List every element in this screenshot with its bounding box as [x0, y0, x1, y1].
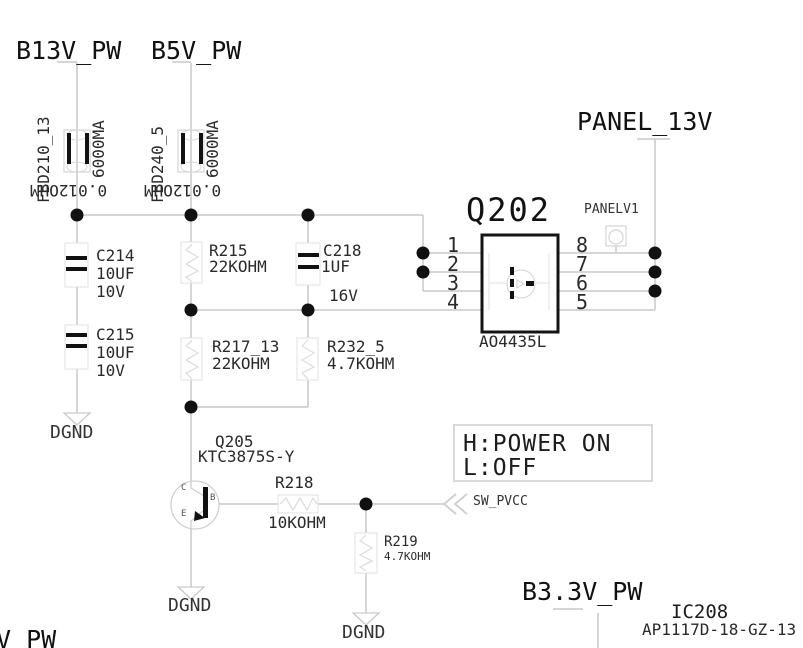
pin-label-base: B	[210, 494, 215, 503]
resistor-symbol	[297, 338, 318, 380]
component-value: 4.7KOHM	[327, 356, 394, 373]
ground-label: DGND	[50, 424, 93, 443]
pin-label-emitter: E	[181, 510, 186, 519]
resistor-symbol	[278, 495, 318, 513]
component-part: AP1117D-18-GZ-13	[642, 622, 796, 639]
signal-label-sw-pvcc: SW_PVCC	[473, 495, 528, 509]
component-part: KTC3875S-Y	[198, 449, 294, 466]
capacitor-symbol	[65, 325, 88, 369]
pin-label-collector: C	[181, 484, 186, 493]
resistor-symbol	[355, 533, 377, 573]
resistor-symbol	[181, 338, 202, 380]
pin-number: 4	[437, 292, 459, 313]
net-label-b5v-pw: B5V_PW	[151, 38, 241, 64]
component-part: AO4435L	[479, 334, 546, 351]
net-label-partial: V_PW	[0, 627, 56, 648]
component-ref: R218	[275, 475, 314, 492]
component-rating: 10V	[96, 363, 125, 380]
resistor-symbol	[181, 242, 202, 283]
bjt-symbol	[171, 481, 219, 529]
component-ref: Q202	[466, 194, 551, 228]
net-label-b13v-pw: B13V_PW	[16, 38, 121, 64]
component-value: 1UF	[321, 259, 350, 276]
schematic-canvas: B13V_PW B5V_PW PANEL_13V B3.3V_PW V_PW F…	[0, 0, 803, 648]
component-value: 0.012OHM	[30, 181, 107, 198]
component-value: 10UF	[96, 266, 135, 283]
pin-number: 5	[576, 292, 588, 313]
net-label-b3-3v-pw: B3.3V_PW	[522, 579, 642, 605]
ground-label: DGND	[168, 597, 211, 616]
capacitor-symbol	[296, 243, 320, 285]
mosfet-symbol	[482, 235, 558, 332]
component-value: 0.012OHM	[144, 181, 221, 198]
component-rating: 6000MA	[91, 120, 108, 178]
net-entry-chevron-icon	[444, 494, 467, 514]
testpoint-label: PANELV1	[584, 203, 639, 217]
component-value: 10UF	[96, 345, 135, 362]
ground-label: DGND	[342, 624, 385, 643]
power-note-line2: L:OFF	[463, 456, 651, 480]
component-value: 10KOHM	[268, 515, 326, 532]
component-ref: C214	[96, 248, 135, 265]
capacitor-symbol	[65, 243, 88, 287]
component-ref: C215	[96, 327, 135, 344]
net-label-panel-13v: PANEL_13V	[577, 109, 712, 135]
testpoint-symbol	[606, 226, 626, 246]
component-value: 4.7KOHM	[384, 551, 430, 563]
component-rating: 10V	[96, 284, 125, 301]
component-value: 22KOHM	[212, 356, 270, 373]
component-ref: R219	[384, 535, 418, 550]
power-note-box: H:POWER ON L:OFF	[453, 424, 653, 482]
component-rating: 6000MA	[205, 120, 222, 178]
component-rating: 16V	[329, 288, 358, 305]
power-note-line1: H:POWER ON	[463, 432, 651, 456]
component-value: 22KOHM	[209, 259, 267, 276]
